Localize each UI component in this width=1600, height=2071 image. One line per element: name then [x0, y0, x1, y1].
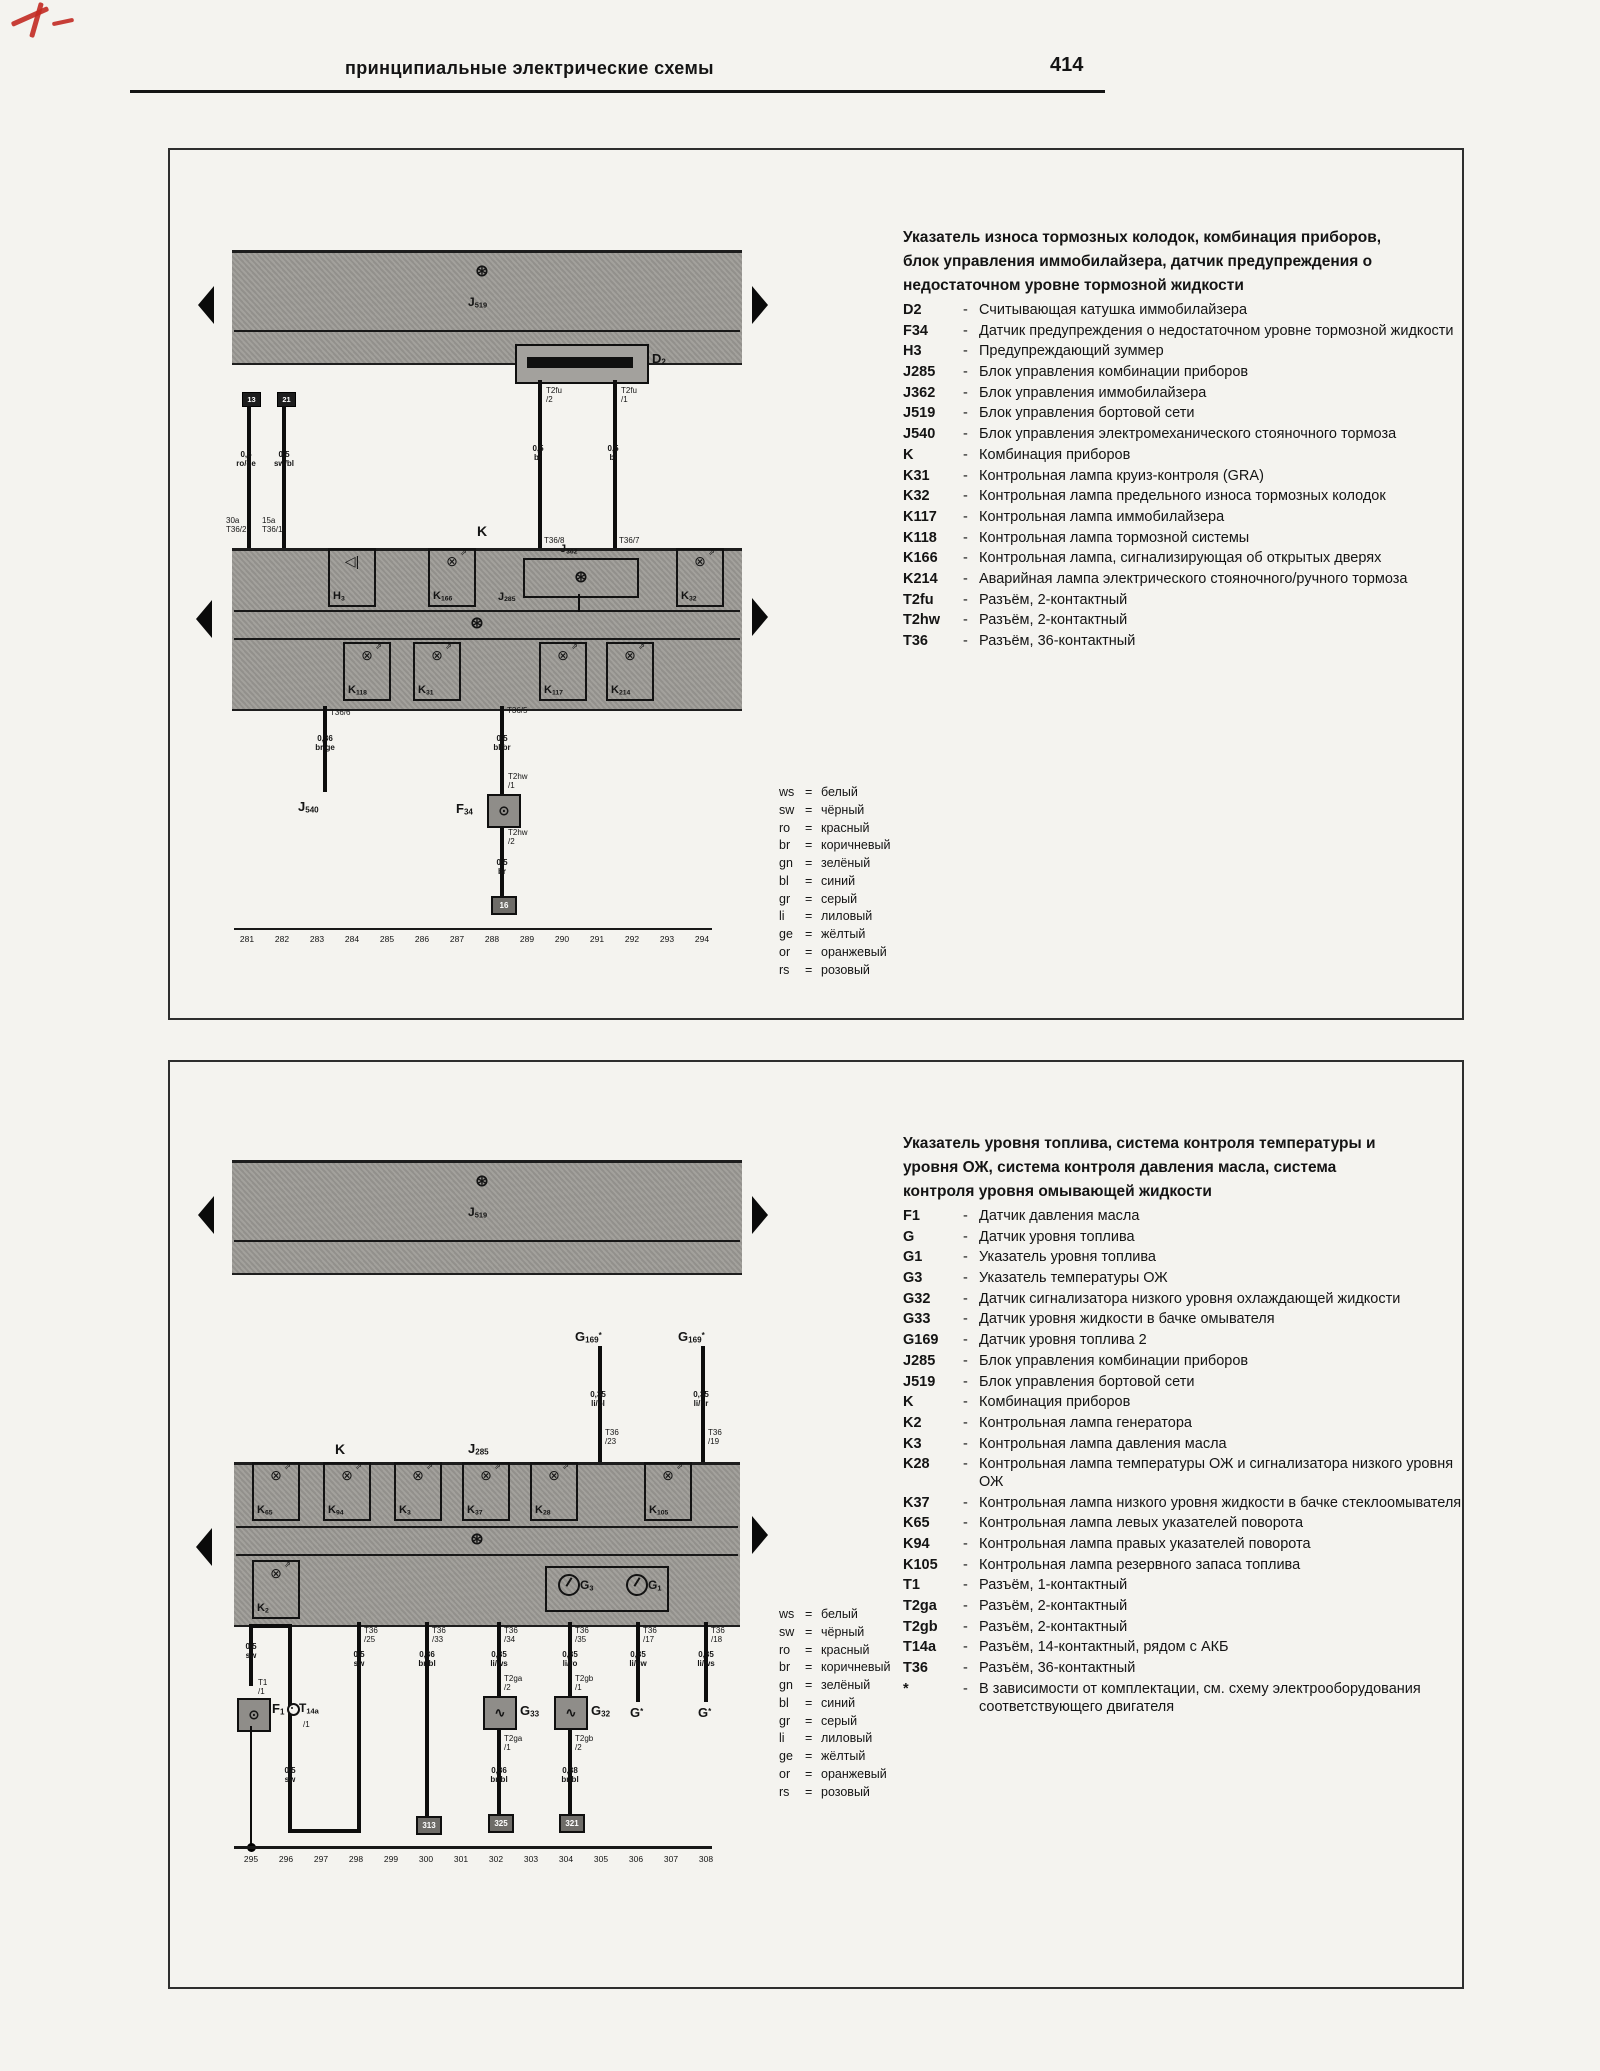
legend-dash: - [963, 1456, 979, 1491]
lamp-id: K65 [257, 1504, 273, 1516]
legend-id: T36 [903, 633, 963, 651]
color-code-row: gn=зелёный [779, 1679, 890, 1693]
pin-label: T2ga /1 [504, 1734, 522, 1752]
equals: = [805, 1732, 821, 1746]
legend-id: G [903, 1229, 963, 1247]
lamp-id: K94 [328, 1504, 344, 1516]
equals: = [805, 1608, 821, 1622]
legend-dash: - [963, 1374, 979, 1392]
legend-desc: Комбинация приборов [979, 447, 1468, 465]
legend-desc: Разъём, 2-контактный [979, 1598, 1468, 1616]
indicator-lamp-cell: ⊗⇗K65 [252, 1462, 300, 1521]
k-label: K [477, 524, 487, 538]
lamp-icon: ⊗⇗ [431, 648, 443, 662]
legend-desc: Контрольная лампа левых указателей повор… [979, 1515, 1468, 1533]
legend-desc: Разъём, 14-контактный, рядом с АКБ [979, 1639, 1468, 1657]
legend-id: K166 [903, 550, 963, 568]
track-number: 283 [302, 934, 332, 944]
track-number: 291 [582, 934, 612, 944]
equals: = [805, 964, 821, 978]
legend-row: K117-Контрольная лампа иммобилайзера [903, 509, 1468, 527]
color-code: sw [779, 1626, 805, 1640]
gauge-icon [558, 1574, 580, 1596]
color-code-row: ro=красный [779, 822, 890, 836]
wire-size-color-label: 0,35 li/bl [580, 1390, 616, 1408]
circled-asterisk-icon: ⊛ [475, 1174, 488, 1190]
legend-id: T2hw [903, 612, 963, 630]
lamp-id: K117 [544, 684, 563, 696]
legend-row: H3-Предупреждающий зуммер [903, 343, 1468, 361]
lamp-id: K37 [467, 1504, 483, 1516]
pin-label: 15a T36/1 [262, 516, 282, 534]
color-code: li [779, 910, 805, 924]
wire-size-color-label: 0,36 br/ge [307, 734, 343, 752]
legend-dash: - [963, 1536, 979, 1554]
legend-desc: Комбинация приборов [979, 1394, 1468, 1412]
track-number: 299 [376, 1854, 406, 1864]
track-number: 305 [586, 1854, 616, 1864]
track-number: 281 [232, 934, 262, 944]
track-number: 288 [477, 934, 507, 944]
bus-divider [236, 1526, 738, 1528]
legend-id: T2ga [903, 1598, 963, 1616]
g33-label: G33 [520, 1704, 539, 1719]
lamp-icon: ⊗⇗ [412, 1468, 424, 1482]
wire-size-color-label: 0,35 li/br [683, 1390, 719, 1408]
legend-id: K65 [903, 1515, 963, 1533]
color-name: серый [821, 893, 890, 907]
equals: = [805, 893, 821, 907]
legend-desc: Блок управления комбинации приборов [979, 1353, 1468, 1371]
equals: = [805, 1768, 821, 1782]
color-code-row: gr=серый [779, 893, 890, 907]
legend-row: T36-Разъём, 36-контактный [903, 1660, 1468, 1678]
legend-id: J285 [903, 364, 963, 382]
color-name: синий [821, 875, 890, 889]
pin-label: T36 /33 [432, 1626, 446, 1644]
legend-dash: - [963, 343, 979, 361]
wire-size-color-label: 0,5 sw [341, 1650, 377, 1668]
legend-desc: Датчик сигнализатора низкого уровня охла… [979, 1291, 1468, 1309]
legend-dash: - [963, 1394, 979, 1412]
color-name: серый [821, 1715, 890, 1729]
ground-point: 313 [416, 1816, 442, 1835]
track-number: 290 [547, 934, 577, 944]
right-continuation-arrow-icon [752, 598, 768, 636]
lamp-icon: ⊗⇗ [557, 648, 569, 662]
legend-row: F34-Датчик предупреждения о недостаточно… [903, 323, 1468, 341]
circled-asterisk-icon: ⊛ [470, 616, 483, 632]
color-name: розовый [821, 1786, 890, 1800]
legend-desc: Блок управления электромеханического сто… [979, 426, 1468, 444]
legend-desc: Контрольная лампа правых указателей пово… [979, 1536, 1468, 1554]
legend-row: K31-Контрольная лампа круиз-контроля (GR… [903, 468, 1468, 486]
panel2-legend: F1-Датчик давления маслаG-Датчик уровня … [903, 1208, 1468, 1719]
j540-label: J540 [298, 800, 319, 815]
track-number: 292 [617, 934, 647, 944]
legend-row: T2hw-Разъём, 2-контактный [903, 612, 1468, 630]
color-name: зелёный [821, 1679, 890, 1693]
legend-id: K2 [903, 1415, 963, 1433]
track-ref-connector: 21 [277, 392, 296, 407]
indicator-lamp-cell: ◁|H3 [328, 548, 376, 607]
legend-id: K214 [903, 571, 963, 589]
legend-row: T2fu-Разъём, 2-контактный [903, 592, 1468, 610]
legend-id: K118 [903, 530, 963, 548]
color-code-row: br=коричневый [779, 1661, 890, 1675]
legend-dash: - [963, 426, 979, 444]
scanned-manual-page: принципиальные электрические схемы 414 ⊛… [0, 0, 1600, 2071]
indicator-lamp-cell: ⊗⇗K166 [428, 548, 476, 607]
legend-row: J519-Блок управления бортовой сети [903, 405, 1468, 423]
pin-label: T36/5 [507, 706, 527, 715]
color-code-row: li=лиловый [779, 910, 890, 924]
equals: = [805, 857, 821, 871]
legend-id: G169 [903, 1332, 963, 1350]
equals: = [805, 1697, 821, 1711]
legend-desc: Блок управления бортовой сети [979, 1374, 1468, 1392]
legend-desc: Блок управления бортовой сети [979, 405, 1468, 423]
indicator-lamp-cell: ⊗⇗K105 [644, 1462, 692, 1521]
legend-desc: Датчик уровня жидкости в бачке омывателя [979, 1311, 1468, 1329]
legend-desc: Блок управления комбинации приборов [979, 364, 1468, 382]
legend-id: T14a [903, 1639, 963, 1657]
left-continuation-arrow-icon [196, 1528, 212, 1566]
legend-id: K32 [903, 488, 963, 506]
legend-desc: Разъём, 2-контактный [979, 592, 1468, 610]
buzzer-icon: ◁| [345, 554, 359, 568]
wire-size-color-label: 0,35 li/ws [481, 1650, 517, 1668]
pin-label: T2hw /1 [508, 772, 528, 790]
pin-label: T36 /35 [575, 1626, 589, 1644]
indicator-lamp-cell: ⊗⇗K94 [323, 1462, 371, 1521]
pin-label: T2gb /2 [575, 1734, 593, 1752]
legend-dash: - [963, 1291, 979, 1309]
legend-desc: Контрольная лампа тормозной системы [979, 530, 1468, 548]
g169-label: G169* [678, 1330, 705, 1345]
legend-desc: Контрольная лампа предельного износа тор… [979, 488, 1468, 506]
pin-label: T2hw /2 [508, 828, 528, 846]
legend-row: K28-Контрольная лампа температуры ОЖ и с… [903, 1456, 1468, 1491]
legend-id: K105 [903, 1557, 963, 1575]
legend-row: T2ga-Разъём, 2-контактный [903, 1598, 1468, 1616]
equals: = [805, 786, 821, 800]
legend-desc: Контрольная лампа круиз-контроля (GRA) [979, 468, 1468, 486]
legend-id: K28 [903, 1456, 963, 1491]
g169-label: G169* [575, 1330, 602, 1345]
g-star-label: G* [698, 1706, 711, 1719]
right-continuation-arrow-icon [752, 286, 768, 324]
lamp-id: K118 [348, 684, 367, 696]
color-code: ws [779, 1608, 805, 1622]
lamp-icon: ⊗⇗ [548, 1468, 560, 1482]
legend-dash: - [963, 1332, 979, 1350]
color-code-row: br=коричневый [779, 839, 890, 853]
legend-row: J285-Блок управления комбинации приборов [903, 1353, 1468, 1371]
indicator-lamp-cell: ⊗⇗K3 [394, 1462, 442, 1521]
pin-label: T1 /1 [258, 1678, 267, 1696]
lamp-icon: ⊗⇗ [694, 554, 706, 568]
track-number: 296 [271, 1854, 301, 1864]
legend-desc: Контрольная лампа низкого уровня жидкост… [979, 1495, 1468, 1513]
legend-row: K65-Контрольная лампа левых указателей п… [903, 1515, 1468, 1533]
wire-size-color-label: 0,5 bl [595, 444, 631, 462]
track-number: 295 [236, 1854, 266, 1864]
red-pen-mark [29, 2, 44, 38]
legend-row: J540-Блок управления электромеханическог… [903, 426, 1468, 444]
legend-dash: - [963, 592, 979, 610]
color-code: ro [779, 1644, 805, 1658]
jumper-wire [249, 1624, 292, 1628]
right-continuation-arrow-icon [752, 1196, 768, 1234]
track-number: 306 [621, 1854, 651, 1864]
indicator-lamp-cell: ⊗⇗K214 [606, 642, 654, 701]
color-code-row: bl=синий [779, 1697, 890, 1711]
legend-desc: Контрольная лампа резервного запаса топл… [979, 1557, 1468, 1575]
color-code: ge [779, 928, 805, 942]
f34-label: F34 [456, 802, 473, 817]
track-number: 289 [512, 934, 542, 944]
legend-dash: - [963, 1639, 979, 1657]
j285-label: J285 [498, 592, 516, 604]
lamp-id: K31 [418, 684, 434, 696]
legend-row: K32-Контрольная лампа предельного износа… [903, 488, 1468, 506]
legend-dash: - [963, 1598, 979, 1616]
legend-row: K118-Контрольная лампа тормозной системы [903, 530, 1468, 548]
legend-id: F34 [903, 323, 963, 341]
jumper-wire [288, 1829, 361, 1833]
color-code-row: rs=розовый [779, 1786, 890, 1800]
equals: = [805, 1715, 821, 1729]
bus-divider [234, 1240, 740, 1242]
legend-row: G-Датчик уровня топлива [903, 1229, 1468, 1247]
header-rule [130, 90, 1105, 93]
ground-point: 325 [488, 1814, 514, 1833]
legend-dash: - [963, 1436, 979, 1454]
legend-id: G33 [903, 1311, 963, 1329]
color-code-row: bl=синий [779, 875, 890, 889]
color-name: розовый [821, 964, 890, 978]
legend-dash: - [963, 1660, 979, 1678]
indicator-lamp-cell: ⊗⇗K118 [343, 642, 391, 701]
g33-sensor: ∿ [483, 1696, 517, 1730]
color-code-row: ws=белый [779, 786, 890, 800]
legend-id: T1 [903, 1577, 963, 1595]
f1-sensor: ⊙ [237, 1698, 271, 1732]
legend-id: J285 [903, 1353, 963, 1371]
legend-dash: - [963, 302, 979, 320]
color-name: чёрный [821, 804, 890, 818]
circled-asterisk-icon: ⊛ [475, 264, 488, 280]
legend-id: K37 [903, 1495, 963, 1513]
track-number: 303 [516, 1854, 546, 1864]
color-code: bl [779, 875, 805, 889]
legend-dash: - [963, 1208, 979, 1226]
legend-row: J519-Блок управления бортовой сети [903, 1374, 1468, 1392]
gauge-icon [626, 1574, 648, 1596]
legend-desc: В зависимости от комплектации, см. схему… [979, 1681, 1468, 1716]
color-code: ge [779, 1750, 805, 1764]
j362-ecu-box: ⊛ [523, 558, 639, 598]
legend-id: H3 [903, 343, 963, 361]
color-name: красный [821, 1644, 890, 1658]
indicator-lamp-cell: ⊗⇗K117 [539, 642, 587, 701]
legend-row: K105-Контрольная лампа резервного запаса… [903, 1557, 1468, 1575]
legend-id: K94 [903, 1536, 963, 1554]
indicator-lamp-cell: ⊗⇗K31 [413, 642, 461, 701]
legend-id: T36 [903, 1660, 963, 1678]
legend-row: G1-Указатель уровня топлива [903, 1249, 1468, 1267]
legend-row: G32-Датчик сигнализатора низкого уровня … [903, 1291, 1468, 1309]
legend-dash: - [963, 1495, 979, 1513]
track-number: 286 [407, 934, 437, 944]
color-code-row: ro=красный [779, 1644, 890, 1658]
gauge-label: G3 [580, 1578, 593, 1593]
color-code: gn [779, 857, 805, 871]
legend-desc: Указатель уровня топлива [979, 1249, 1468, 1267]
legend-dash: - [963, 612, 979, 630]
legend-dash: - [963, 468, 979, 486]
lamp-id: K105 [649, 1504, 668, 1516]
legend-dash: - [963, 323, 979, 341]
legend-desc: Разъём, 2-контактный [979, 1619, 1468, 1637]
wire-size-color-label: 0,5 ro/ge [228, 450, 264, 468]
wire-color-code-list: ws=белыйsw=чёрныйro=красныйbr=коричневый… [779, 1608, 890, 1803]
color-code: br [779, 1661, 805, 1675]
track-number: 287 [442, 934, 472, 944]
legend-dash: - [963, 1415, 979, 1433]
equals: = [805, 1786, 821, 1800]
legend-dash: - [963, 550, 979, 568]
ground-point: 321 [559, 1814, 585, 1833]
legend-dash: - [963, 385, 979, 403]
track-number: 293 [652, 934, 682, 944]
track-rule [234, 928, 712, 930]
lamp-icon: ⊗⇗ [361, 648, 373, 662]
g-star-label: G* [630, 1706, 643, 1719]
legend-dash: - [963, 1311, 979, 1329]
color-code: ws [779, 786, 805, 800]
f34-sensor: ⊙ [487, 794, 521, 828]
lamp-id: K166 [433, 590, 452, 602]
color-code-row: gr=серый [779, 1715, 890, 1729]
circled-asterisk-icon: ⊛ [470, 1532, 483, 1548]
lamp-icon: ⊗⇗ [341, 1468, 353, 1482]
color-code-row: rs=розовый [779, 964, 890, 978]
pin-label: T2ga /2 [504, 1674, 522, 1692]
legend-desc: Контрольная лампа температуры ОЖ и сигна… [979, 1456, 1468, 1491]
lamp-icon: ⊗⇗ [270, 1468, 282, 1482]
pin-label: T36 /18 [711, 1626, 725, 1644]
legend-id: K [903, 1394, 963, 1412]
equals: = [805, 875, 821, 889]
legend-id: G1 [903, 1249, 963, 1267]
lamp-icon: ⊗⇗ [624, 648, 636, 662]
color-name: оранжевый [821, 1768, 890, 1782]
j519-label: J519 [468, 1206, 487, 1219]
legend-desc: Контрольная лампа генератора [979, 1415, 1468, 1433]
d2-coil-core [527, 357, 633, 368]
legend-desc: Разъём, 1-контактный [979, 1577, 1468, 1595]
color-code-row: sw=чёрный [779, 804, 890, 818]
color-code: gr [779, 893, 805, 907]
legend-row: T1-Разъём, 1-контактный [903, 1577, 1468, 1595]
ground-rail [234, 1846, 712, 1849]
legend-desc: Контрольная лампа давления масла [979, 1436, 1468, 1454]
track-number: 302 [481, 1854, 511, 1864]
color-code-row: li=лиловый [779, 1732, 890, 1746]
wire-size-color-label: 0,35 li/ro [552, 1650, 588, 1668]
legend-row: K166-Контрольная лампа, сигнализирующая … [903, 550, 1468, 568]
pin-label: /1 [303, 1720, 310, 1729]
k-label: K [335, 1442, 345, 1456]
bus-divider [236, 1554, 738, 1556]
indicator-lamp-cell: ⊗⇗K32 [676, 548, 724, 607]
equals: = [805, 1750, 821, 1764]
legend-id: T2fu [903, 592, 963, 610]
color-code: gn [779, 1679, 805, 1693]
wire-color-code-list: ws=белыйsw=чёрныйro=красныйbr=коричневый… [779, 786, 890, 981]
track-number: 298 [341, 1854, 371, 1864]
equals: = [805, 822, 821, 836]
wire-size-color-label: 0,5 sw/bl [266, 450, 302, 468]
legend-row: K-Комбинация приборов [903, 1394, 1468, 1412]
legend-dash: - [963, 530, 979, 548]
color-code: gr [779, 1715, 805, 1729]
panel1-title: Указатель износа тормозных колодок, комб… [903, 226, 1468, 298]
legend-dash: - [963, 1515, 979, 1533]
legend-dash: - [963, 633, 979, 651]
equals: = [805, 839, 821, 853]
legend-id: F1 [903, 1208, 963, 1226]
pin-label: T36 /19 [708, 1428, 722, 1446]
legend-dash: - [963, 509, 979, 527]
pin-label: T36 /25 [364, 1626, 378, 1644]
track-number: 300 [411, 1854, 441, 1864]
indicator-lamp-cell: ⊗⇗K28 [530, 1462, 578, 1521]
legend-row: G3-Указатель температуры ОЖ [903, 1270, 1468, 1288]
color-name: лиловый [821, 1732, 890, 1746]
panel1-legend: D2-Считывающая катушка иммобилайзераF34-… [903, 302, 1468, 654]
lamp-icon: ⊗⇗ [480, 1468, 492, 1482]
equals: = [805, 928, 821, 942]
equals: = [805, 946, 821, 960]
color-code: br [779, 839, 805, 853]
j519-label: J519 [468, 296, 487, 309]
wire-size-color-label: 0,5 sw [233, 1642, 269, 1660]
track-number: 307 [656, 1854, 686, 1864]
legend-dash: - [963, 488, 979, 506]
wire-size-color-label: 0,5 br [484, 858, 520, 876]
legend-row: G33-Датчик уровня жидкости в бачке омыва… [903, 1311, 1468, 1329]
legend-id: K31 [903, 468, 963, 486]
legend-row: K94-Контрольная лампа правых указателей … [903, 1536, 1468, 1554]
legend-row: *-В зависимости от комплектации, см. схе… [903, 1681, 1468, 1716]
legend-dash: - [963, 571, 979, 589]
j285-label: J285 [468, 1442, 489, 1457]
track-number: 294 [687, 934, 717, 944]
legend-id: K3 [903, 1436, 963, 1454]
legend-desc: Блок управления иммобилайзера [979, 385, 1468, 403]
lamp-id: K28 [535, 1504, 551, 1516]
right-continuation-arrow-icon [752, 1516, 768, 1554]
legend-row: F1-Датчик давления масла [903, 1208, 1468, 1226]
equals: = [805, 1679, 821, 1693]
wire [613, 380, 617, 560]
equals: = [805, 1661, 821, 1675]
red-pen-mark [52, 18, 74, 26]
wire-size-color-label: 0,35 li/ws [688, 1650, 724, 1668]
